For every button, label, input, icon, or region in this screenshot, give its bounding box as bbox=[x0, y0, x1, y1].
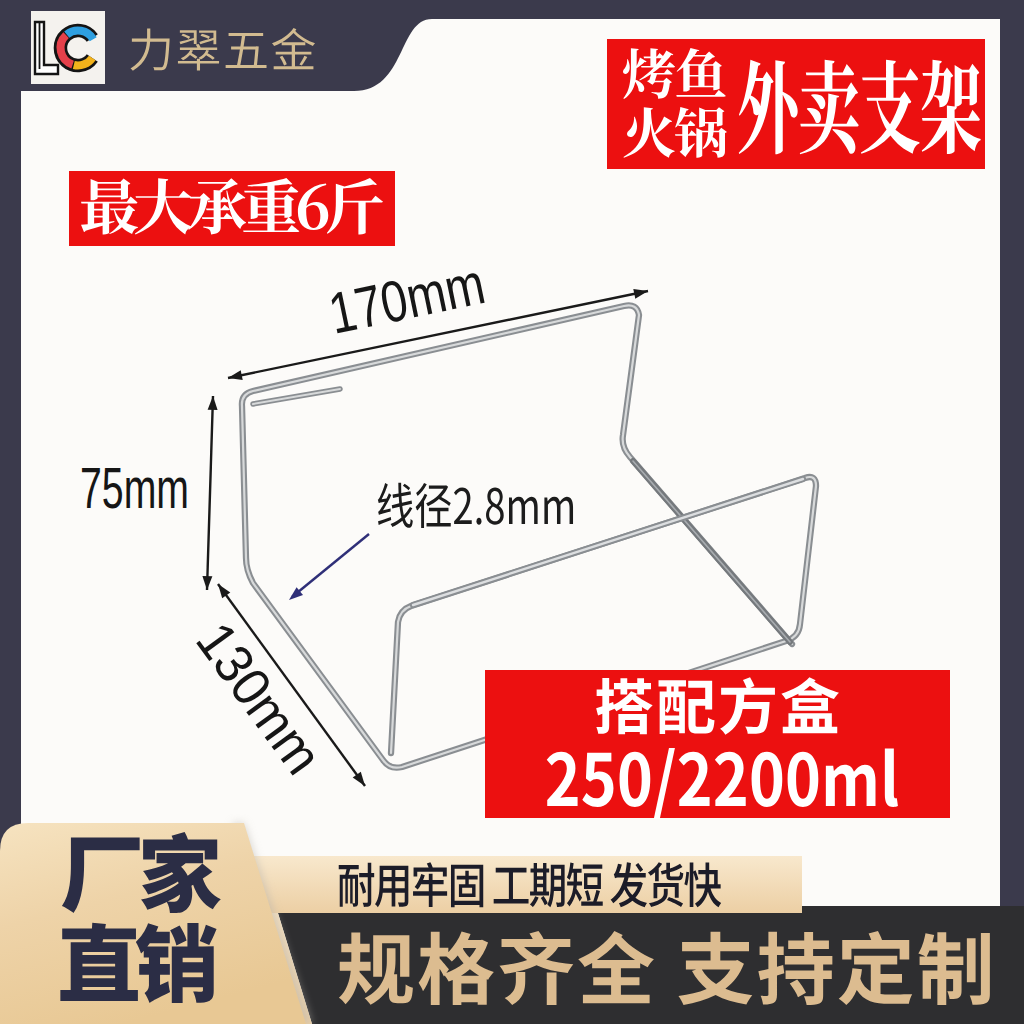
svg-text:75mm: 75mm bbox=[80, 456, 189, 520]
